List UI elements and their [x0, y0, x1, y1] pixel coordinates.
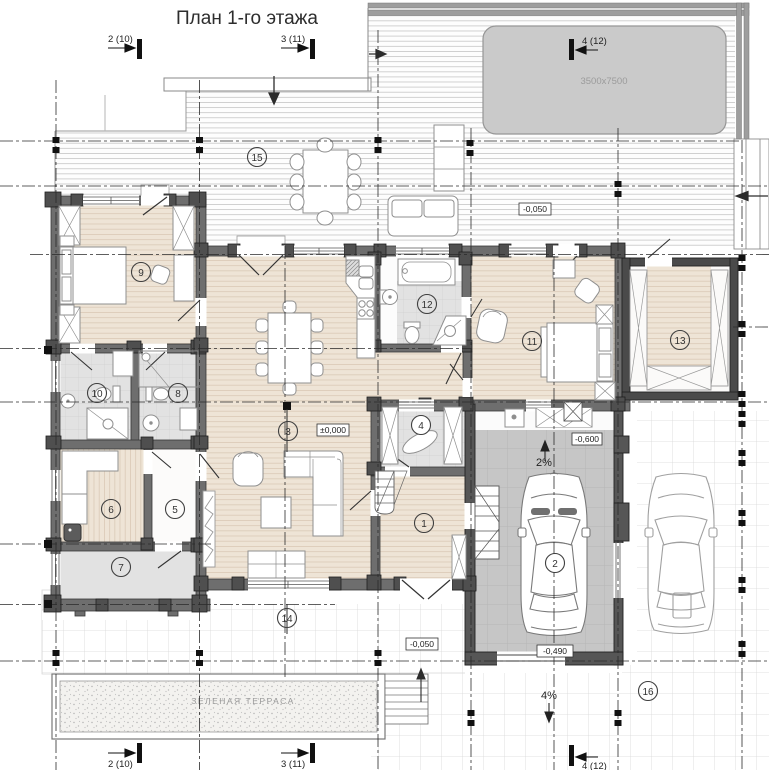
svg-text:2: 2	[552, 559, 558, 570]
svg-text:4%: 4%	[541, 690, 557, 702]
svg-text:2 (10): 2 (10)	[108, 759, 133, 770]
svg-text:4: 4	[418, 421, 424, 432]
svg-text:10: 10	[91, 389, 103, 400]
svg-text:6: 6	[108, 505, 114, 516]
svg-text:1: 1	[421, 519, 427, 530]
svg-text:План 1-го этажа: План 1-го этажа	[176, 8, 318, 29]
svg-text:3 (11): 3 (11)	[281, 34, 305, 45]
svg-text:12: 12	[421, 300, 433, 311]
svg-text:-0,050: -0,050	[523, 204, 547, 214]
svg-text:3 (11): 3 (11)	[281, 759, 305, 770]
svg-text:8: 8	[175, 389, 181, 400]
svg-text:11: 11	[527, 337, 538, 348]
svg-text:5: 5	[172, 505, 178, 516]
svg-text:7: 7	[118, 563, 124, 574]
svg-text:3500х7500: 3500х7500	[580, 76, 627, 87]
svg-text:4 (12): 4 (12)	[582, 36, 607, 47]
svg-text:-0,050: -0,050	[410, 639, 434, 649]
svg-text:9: 9	[138, 268, 144, 279]
svg-text:15: 15	[251, 153, 263, 164]
svg-text:16: 16	[642, 687, 654, 698]
svg-text:3: 3	[285, 427, 291, 438]
svg-text:4 (12): 4 (12)	[582, 761, 607, 770]
svg-text:-0,600: -0,600	[575, 434, 599, 444]
svg-text:±0,000: ±0,000	[320, 425, 346, 435]
svg-text:14: 14	[281, 614, 293, 625]
svg-text:2%: 2%	[536, 457, 552, 469]
svg-text:13: 13	[674, 336, 686, 347]
svg-text:2 (10): 2 (10)	[108, 34, 133, 45]
svg-text:-0,490: -0,490	[543, 646, 567, 656]
svg-text:ЗЕЛЕНАЯ ТЕРРАСА: ЗЕЛЕНАЯ ТЕРРАСА	[191, 696, 295, 706]
